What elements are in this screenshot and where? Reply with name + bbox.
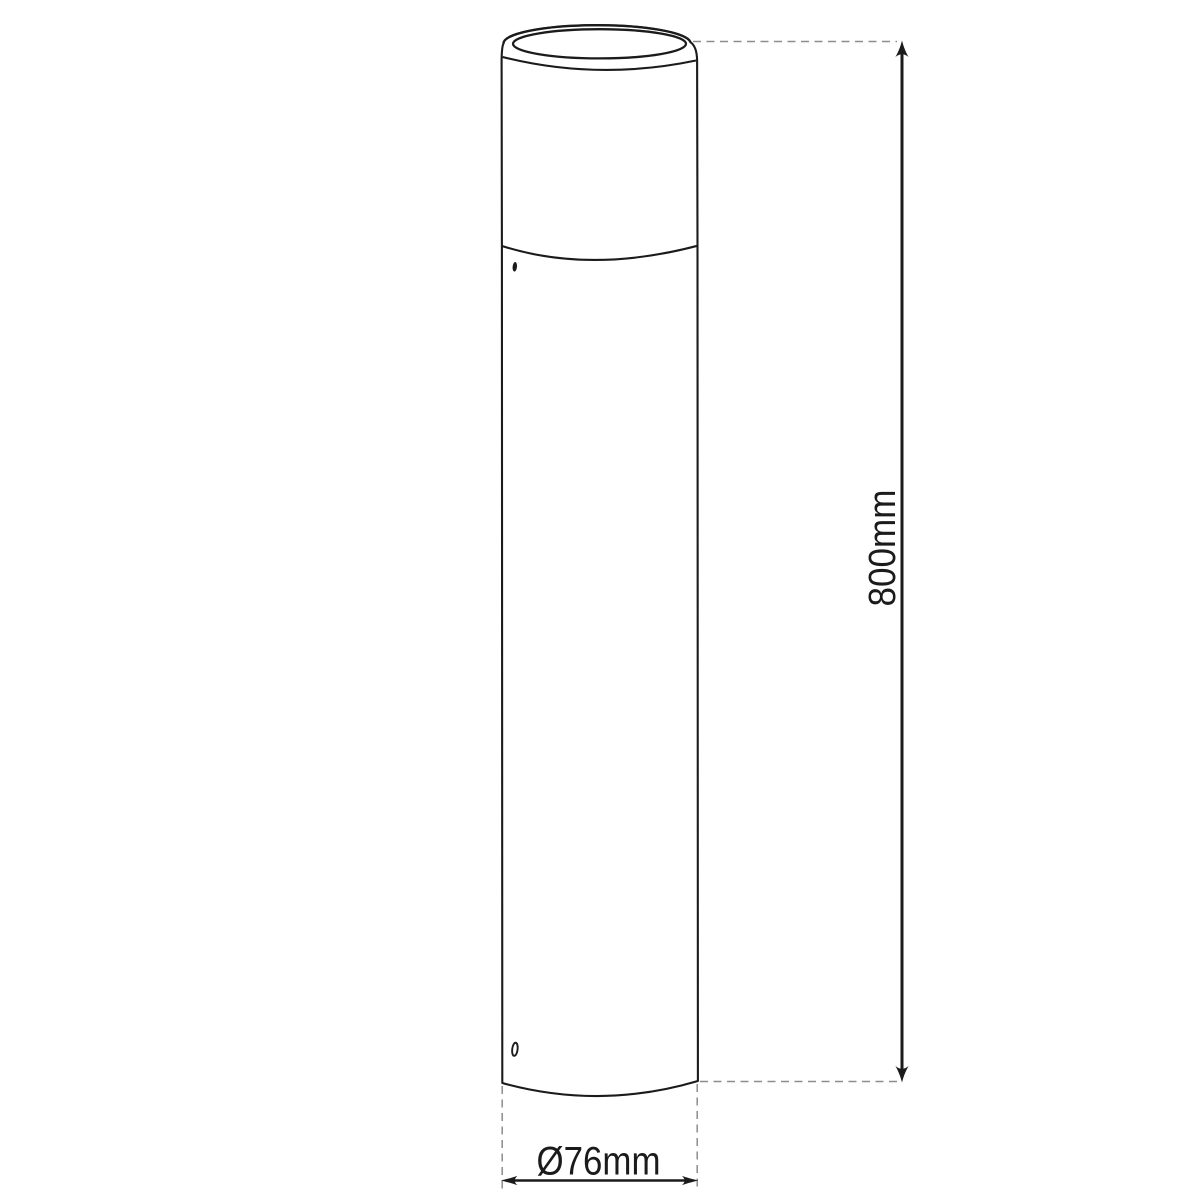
svg-text:Ø76mm: Ø76mm [537, 1140, 661, 1184]
svg-text:800mm: 800mm [862, 490, 904, 607]
